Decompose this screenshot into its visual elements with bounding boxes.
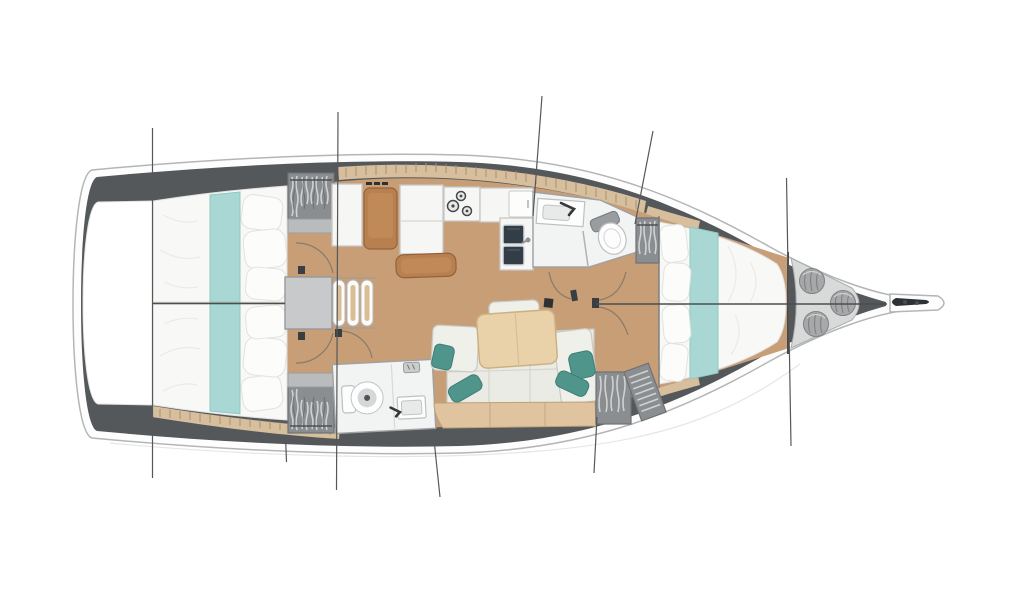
galley-cabinet bbox=[332, 184, 362, 246]
companionway-steps bbox=[333, 280, 373, 326]
chart-table bbox=[400, 185, 443, 254]
mast-post bbox=[544, 298, 554, 308]
nav-seat bbox=[364, 184, 397, 250]
forward-wardrobe-top bbox=[636, 218, 659, 263]
aft-head-sink bbox=[397, 396, 426, 419]
sail-locker bbox=[788, 252, 859, 354]
rope-coil bbox=[831, 291, 856, 316]
stove bbox=[444, 187, 480, 221]
engine-box bbox=[285, 277, 332, 329]
forward-teal-runner bbox=[690, 227, 718, 379]
salon-table bbox=[476, 309, 558, 368]
rope-coil bbox=[800, 269, 825, 294]
counter-cabinet bbox=[509, 191, 533, 217]
yacht-floor-plan: yacht-interior-floor-plan bbox=[0, 0, 1024, 600]
rope-coil bbox=[804, 312, 829, 337]
settee-front-panel bbox=[434, 402, 596, 428]
aft-head bbox=[332, 359, 435, 433]
galley-island bbox=[396, 253, 457, 278]
yacht-floor-plan-canvas: yacht-interior-floor-plan bbox=[0, 0, 1024, 600]
aft-head-toilet bbox=[341, 381, 384, 415]
vent-badge bbox=[403, 362, 420, 373]
anchor-platform bbox=[890, 294, 944, 312]
transom-platform bbox=[83, 201, 153, 405]
companionway bbox=[285, 277, 377, 329]
